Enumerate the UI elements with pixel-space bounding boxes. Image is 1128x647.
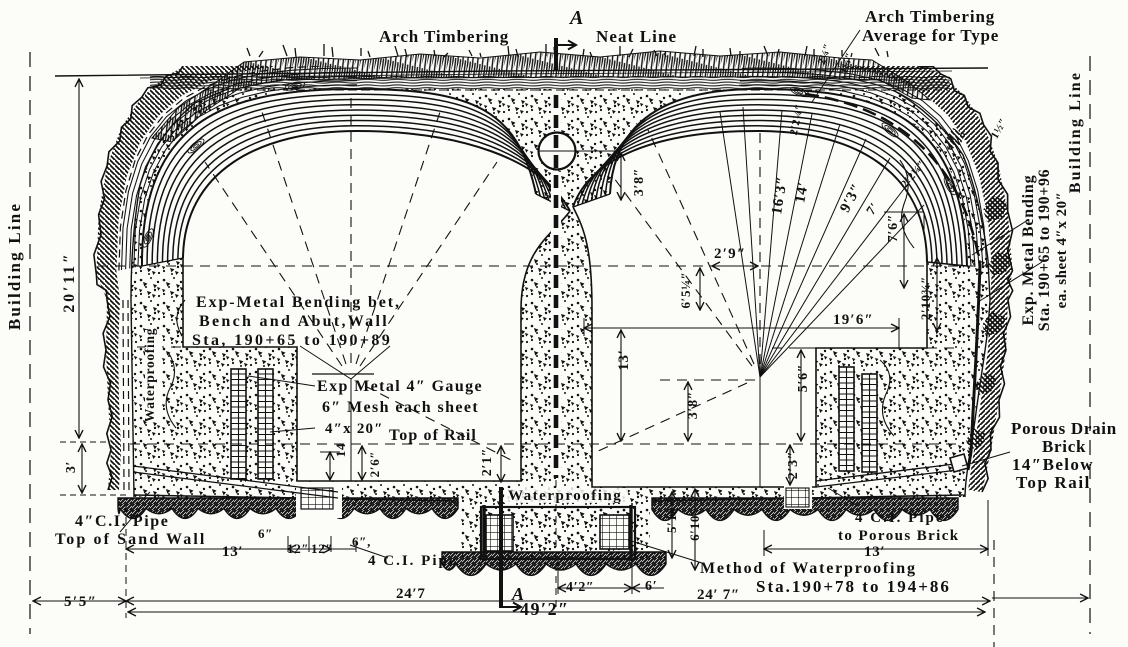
svg-text:13′: 13′ <box>616 349 632 370</box>
svg-text:Method of Waterproofing: Method of Waterproofing <box>700 560 917 577</box>
svg-text:Average for Type: Average for Type <box>862 26 999 45</box>
svg-text:5′10: 5′10 <box>664 507 679 533</box>
svg-text:14″Below: 14″Below <box>1012 455 1094 474</box>
svg-text:to Porous Brick: to Porous Brick <box>838 528 960 544</box>
svg-text:2′3″: 2′3″ <box>786 451 801 479</box>
svg-text:Sta. 190+65 to 190+96: Sta. 190+65 to 190+96 <box>1036 169 1053 331</box>
svg-text:A: A <box>511 584 525 604</box>
svg-text:Brick: Brick <box>1042 437 1086 456</box>
svg-text:4 C.I. Pipe: 4 C.I. Pipe <box>855 510 945 526</box>
svg-text:6′5¼″: 6′5¼″ <box>678 271 693 308</box>
svg-text:20′11″: 20′11″ <box>61 251 78 312</box>
svg-text:Porous Drain: Porous Drain <box>1011 419 1117 438</box>
svg-text:3′8″: 3′8″ <box>686 391 701 419</box>
svg-text:A: A <box>568 7 584 29</box>
svg-text:ea. sheet 4″x 20″: ea. sheet 4″x 20″ <box>1054 192 1070 309</box>
svg-text:6′: 6′ <box>645 579 657 594</box>
svg-text:6″,: 6″, <box>352 534 371 549</box>
svg-text:5′6″: 5′6″ <box>796 364 811 392</box>
svg-text:3′8″: 3′8″ <box>632 168 647 196</box>
svg-text:Top of Rail: Top of Rail <box>389 427 477 444</box>
svg-text:Sta, 190+65 to 190+89: Sta, 190+65 to 190+89 <box>192 332 392 349</box>
svg-text:2′9″: 2′9″ <box>714 246 746 262</box>
svg-text:4 C.I. Pipe: 4 C.I. Pipe <box>368 553 458 569</box>
svg-text:Sta.190+78 to 194+86: Sta.190+78 to 194+86 <box>756 577 951 596</box>
svg-text:Waterproofing: Waterproofing <box>142 328 157 422</box>
svg-text:24′7: 24′7 <box>396 586 426 602</box>
svg-text:5′5″: 5′5″ <box>64 594 98 610</box>
svg-text:Waterproofing: Waterproofing <box>508 488 622 504</box>
svg-text:Building Line: Building Line <box>5 202 24 330</box>
svg-text:Building Line: Building Line <box>1067 71 1084 193</box>
svg-text:24′ 7″: 24′ 7″ <box>697 587 740 603</box>
svg-text:Exp Metal 4″ Gauge: Exp Metal 4″ Gauge <box>317 378 483 395</box>
svg-text:19′6″: 19′6″ <box>833 312 874 328</box>
svg-text:Bench and Abut,Wall: Bench and Abut,Wall <box>199 313 389 330</box>
svg-text:2′6″: 2′6″ <box>367 451 382 478</box>
svg-text:Top Rail: Top Rail <box>1016 473 1091 492</box>
svg-text:4′2″: 4′2″ <box>566 580 594 595</box>
svg-text:Arch Timbering: Arch Timbering <box>379 27 509 46</box>
svg-text:6′10″: 6′10″ <box>687 507 702 541</box>
svg-text:14: 14 <box>333 443 348 457</box>
svg-text:4″C.I. Pipe: 4″C.I. Pipe <box>75 513 169 530</box>
svg-text:7′6″: 7′6″ <box>886 214 901 242</box>
svg-text:Exp-Metal Bending bet,: Exp-Metal Bending bet, <box>196 294 401 311</box>
svg-text:13′: 13′ <box>864 544 885 560</box>
svg-text:12″: 12″ <box>311 541 333 556</box>
svg-text:3′: 3′ <box>64 461 79 473</box>
svg-text:Top of Sand Wall: Top of Sand Wall <box>55 531 206 548</box>
svg-text:4″x 20″: 4″x 20″ <box>325 421 384 437</box>
svg-text:Arch Timbering: Arch Timbering <box>865 7 995 26</box>
svg-text:2′10¾″: 2′10¾″ <box>918 276 933 320</box>
svg-text:12″: 12″ <box>287 541 309 556</box>
svg-text:13′: 13′ <box>222 544 243 560</box>
svg-text:6″: 6″ <box>258 526 273 541</box>
svg-text:6″ Mesh each sheet: 6″ Mesh each sheet <box>322 399 479 416</box>
svg-text:Exp. Metal Bending: Exp. Metal Bending <box>1020 175 1037 326</box>
svg-text:2′1″: 2′1″ <box>480 448 495 476</box>
svg-text:49′2″: 49′2″ <box>520 599 570 619</box>
svg-text:Neat Line: Neat Line <box>596 27 677 46</box>
